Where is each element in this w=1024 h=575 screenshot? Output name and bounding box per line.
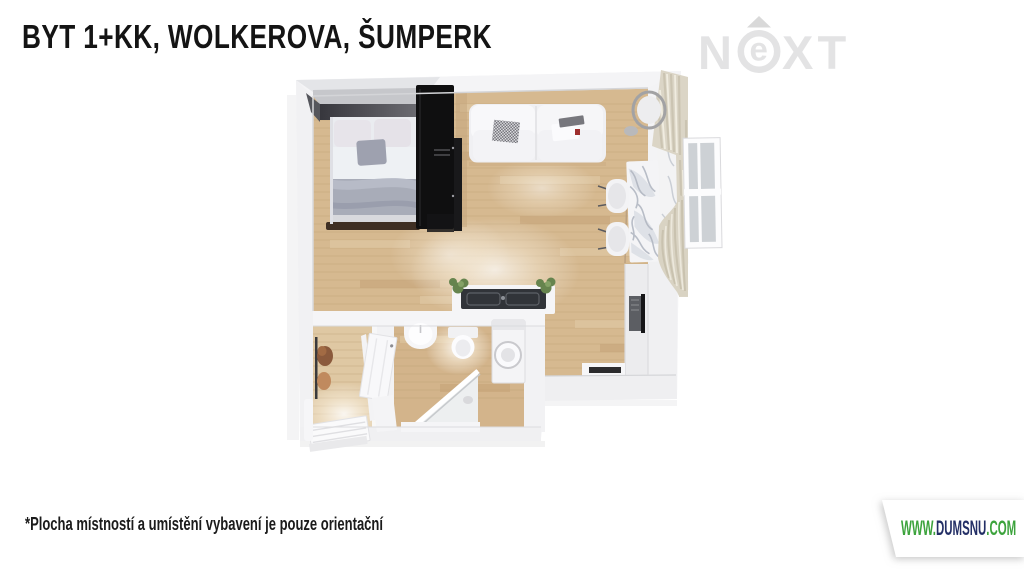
svg-text:e: e bbox=[750, 31, 768, 68]
svg-text:T: T bbox=[818, 26, 847, 79]
svg-text:X: X bbox=[782, 26, 813, 79]
svg-text:WWW.DUMSNU.COM: WWW.DUMSNU.COM bbox=[901, 516, 1016, 540]
